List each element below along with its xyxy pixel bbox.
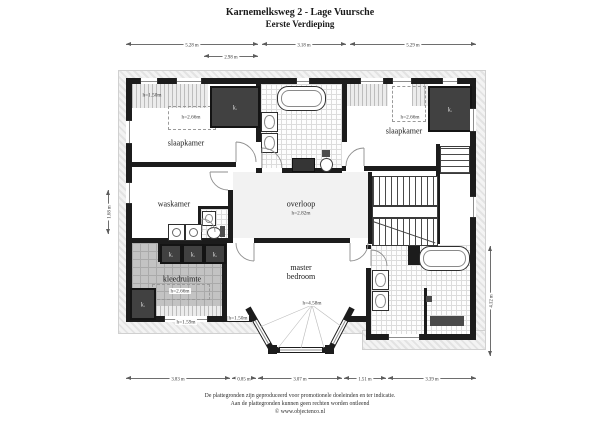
height-label-kleedruimte: h=2.66m (169, 288, 191, 294)
closet-top-right: k. (428, 86, 472, 132)
wall-overloop-master (254, 238, 350, 243)
bathtub-bottom (419, 246, 470, 271)
window-top-3 (296, 78, 310, 84)
toilet-tank-top (322, 150, 330, 157)
dimension-bottom-1: 3.83 m (126, 378, 230, 379)
wall-under-bedroomR-a (342, 166, 346, 171)
washer-drum-icon (172, 228, 181, 237)
closet-bottom-left: k. (130, 288, 156, 320)
window-top-dormer (392, 78, 412, 84)
room-label-overloop: overloop (287, 200, 315, 209)
wall-bottom-bathroom (366, 334, 476, 340)
bay-post-right (325, 345, 334, 354)
window-top-4 (360, 78, 384, 84)
dimension-bottom-5: 3.39 m (388, 378, 476, 379)
wall-shower (424, 288, 427, 334)
bathtub-top (277, 86, 326, 111)
staircase-flight-a (372, 176, 438, 206)
closet-label: k. (141, 301, 145, 307)
window-right-1 (470, 108, 476, 132)
window-left-2 (126, 182, 132, 204)
closet-row-1: k. (160, 244, 182, 264)
sink-bottom-1 (372, 270, 389, 290)
master-label-line1: master (287, 263, 315, 272)
closet-label: k. (448, 106, 452, 112)
room-label-bedroom-left: slaapkamer (168, 139, 204, 148)
door-swing-waskamer (210, 172, 228, 190)
sink-top-1 (261, 112, 278, 132)
closet-row-3: k. (204, 244, 226, 264)
bath-cabinet (292, 158, 315, 172)
bay-wall (248, 308, 352, 350)
dimension-top-inner: 2.98 m (204, 56, 258, 57)
door-swing-bedroom-right (346, 148, 364, 166)
room-label-waskamer: waskamer (158, 200, 190, 209)
sink-basin (264, 115, 275, 129)
washing-machine (168, 224, 185, 241)
bathtub-inner (281, 90, 322, 107)
closet-label: k. (233, 104, 237, 110)
height-label-bottom-center: h=1.50m (227, 315, 249, 321)
window-top-1 (140, 78, 158, 84)
staircase-landing (372, 206, 438, 218)
window-right-2 (470, 196, 476, 218)
shower-head (426, 296, 432, 302)
wall-wc-top (198, 206, 228, 209)
sloped-ceiling-top-right-a (346, 84, 388, 106)
room-label-kleedruimte: kleedruimte (163, 275, 201, 284)
closet-label: k. (213, 251, 217, 257)
page-subtitle: Eerste Verdieping (0, 19, 600, 29)
floor-plan-page: Karnemelksweg 2 - Lage Vuursche Eerste V… (0, 0, 600, 424)
height-label-bottom-left: h=1.59m (175, 319, 197, 325)
closet-row-2: k. (182, 244, 204, 264)
door-swing-bathroom-bottom (371, 250, 387, 266)
window-top-2 (176, 78, 202, 84)
wall-under-bedroomL (132, 162, 236, 167)
dryer-drum-icon (189, 228, 198, 237)
dimension-top-3: 5.29 m (350, 44, 476, 45)
height-label-bedroom-right: h=2.66m (401, 114, 420, 120)
window-bottom-bathroom (388, 334, 420, 340)
dimension-bottom-3: 3.07 m (258, 378, 342, 379)
door-swing-bedroom-left (236, 142, 256, 162)
wall-waskamer-overloop (228, 190, 233, 240)
closet-top-left: k. (210, 86, 260, 128)
master-label-line2: bedroom (287, 272, 315, 281)
footer-disclaimer-2: Aan de plattegronden kunnen geen rechten… (84, 400, 516, 406)
height-label-top-left: h=1.50m (143, 92, 162, 98)
dimension-top-2: 3.18 m (262, 44, 346, 45)
staircase-upper-flight (440, 146, 470, 174)
height-label-overloop: h=2.82m (292, 210, 311, 216)
door-swing-wc (202, 219, 215, 232)
wall-bath-bottom-a (256, 168, 262, 173)
wall-bath-bedroomR (342, 84, 347, 142)
shower-drain (430, 316, 464, 326)
wc-toilet-tank (220, 226, 225, 237)
door-swing-master-left (236, 243, 254, 261)
window-left-1 (126, 120, 132, 144)
dimension-right: 4.12 m (490, 246, 491, 356)
height-label-master: h=4.58m (301, 300, 323, 306)
window-top-5 (442, 78, 458, 84)
dimension-bottom-2: 0.85 m (232, 378, 256, 379)
door-swing-bathroom-top (262, 148, 282, 168)
closet-label: k. (169, 251, 173, 257)
page-title: Karnemelksweg 2 - Lage Vuursche (0, 7, 600, 18)
dimension-top-1: 5.28 m (126, 44, 258, 45)
closet-label: k. (191, 251, 195, 257)
room-label-bedroom-right: slaapkamer (386, 127, 422, 136)
room-label-master-bedroom: master bedroom (287, 263, 315, 281)
bay-post-left (268, 345, 277, 354)
footer-copyright: © www.objectenco.nl (84, 408, 516, 414)
footer-disclaimer-1: De plattegronden zijn geproduceerd voor … (84, 392, 516, 398)
bathtub-inner (423, 250, 466, 267)
dimension-left: 1.68 m (108, 190, 109, 234)
door-swing-master-right (350, 243, 368, 261)
height-label-bedroom-left: h=2.66m (182, 114, 201, 120)
dryer (185, 224, 202, 241)
dimension-bottom-4: 1.51 m (344, 378, 386, 379)
sink-basin (375, 273, 386, 287)
